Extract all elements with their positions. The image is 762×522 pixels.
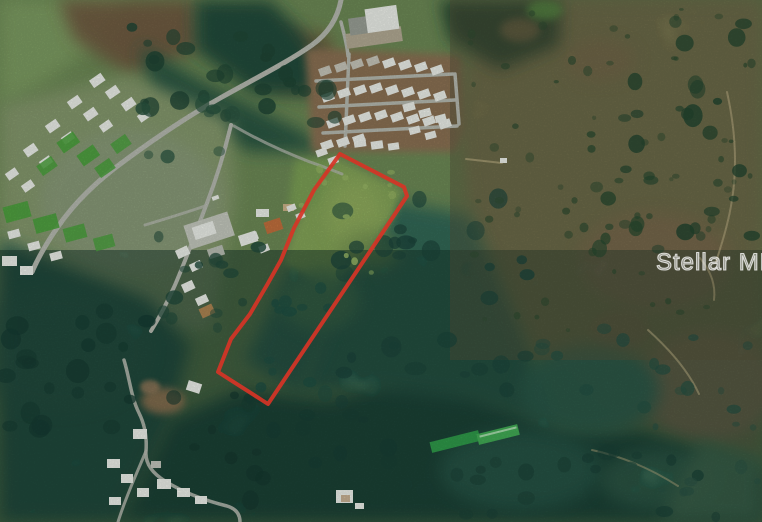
satellite-image xyxy=(0,0,762,522)
image-grain xyxy=(0,0,762,522)
satellite-map: Stellar MLS xyxy=(0,0,762,522)
